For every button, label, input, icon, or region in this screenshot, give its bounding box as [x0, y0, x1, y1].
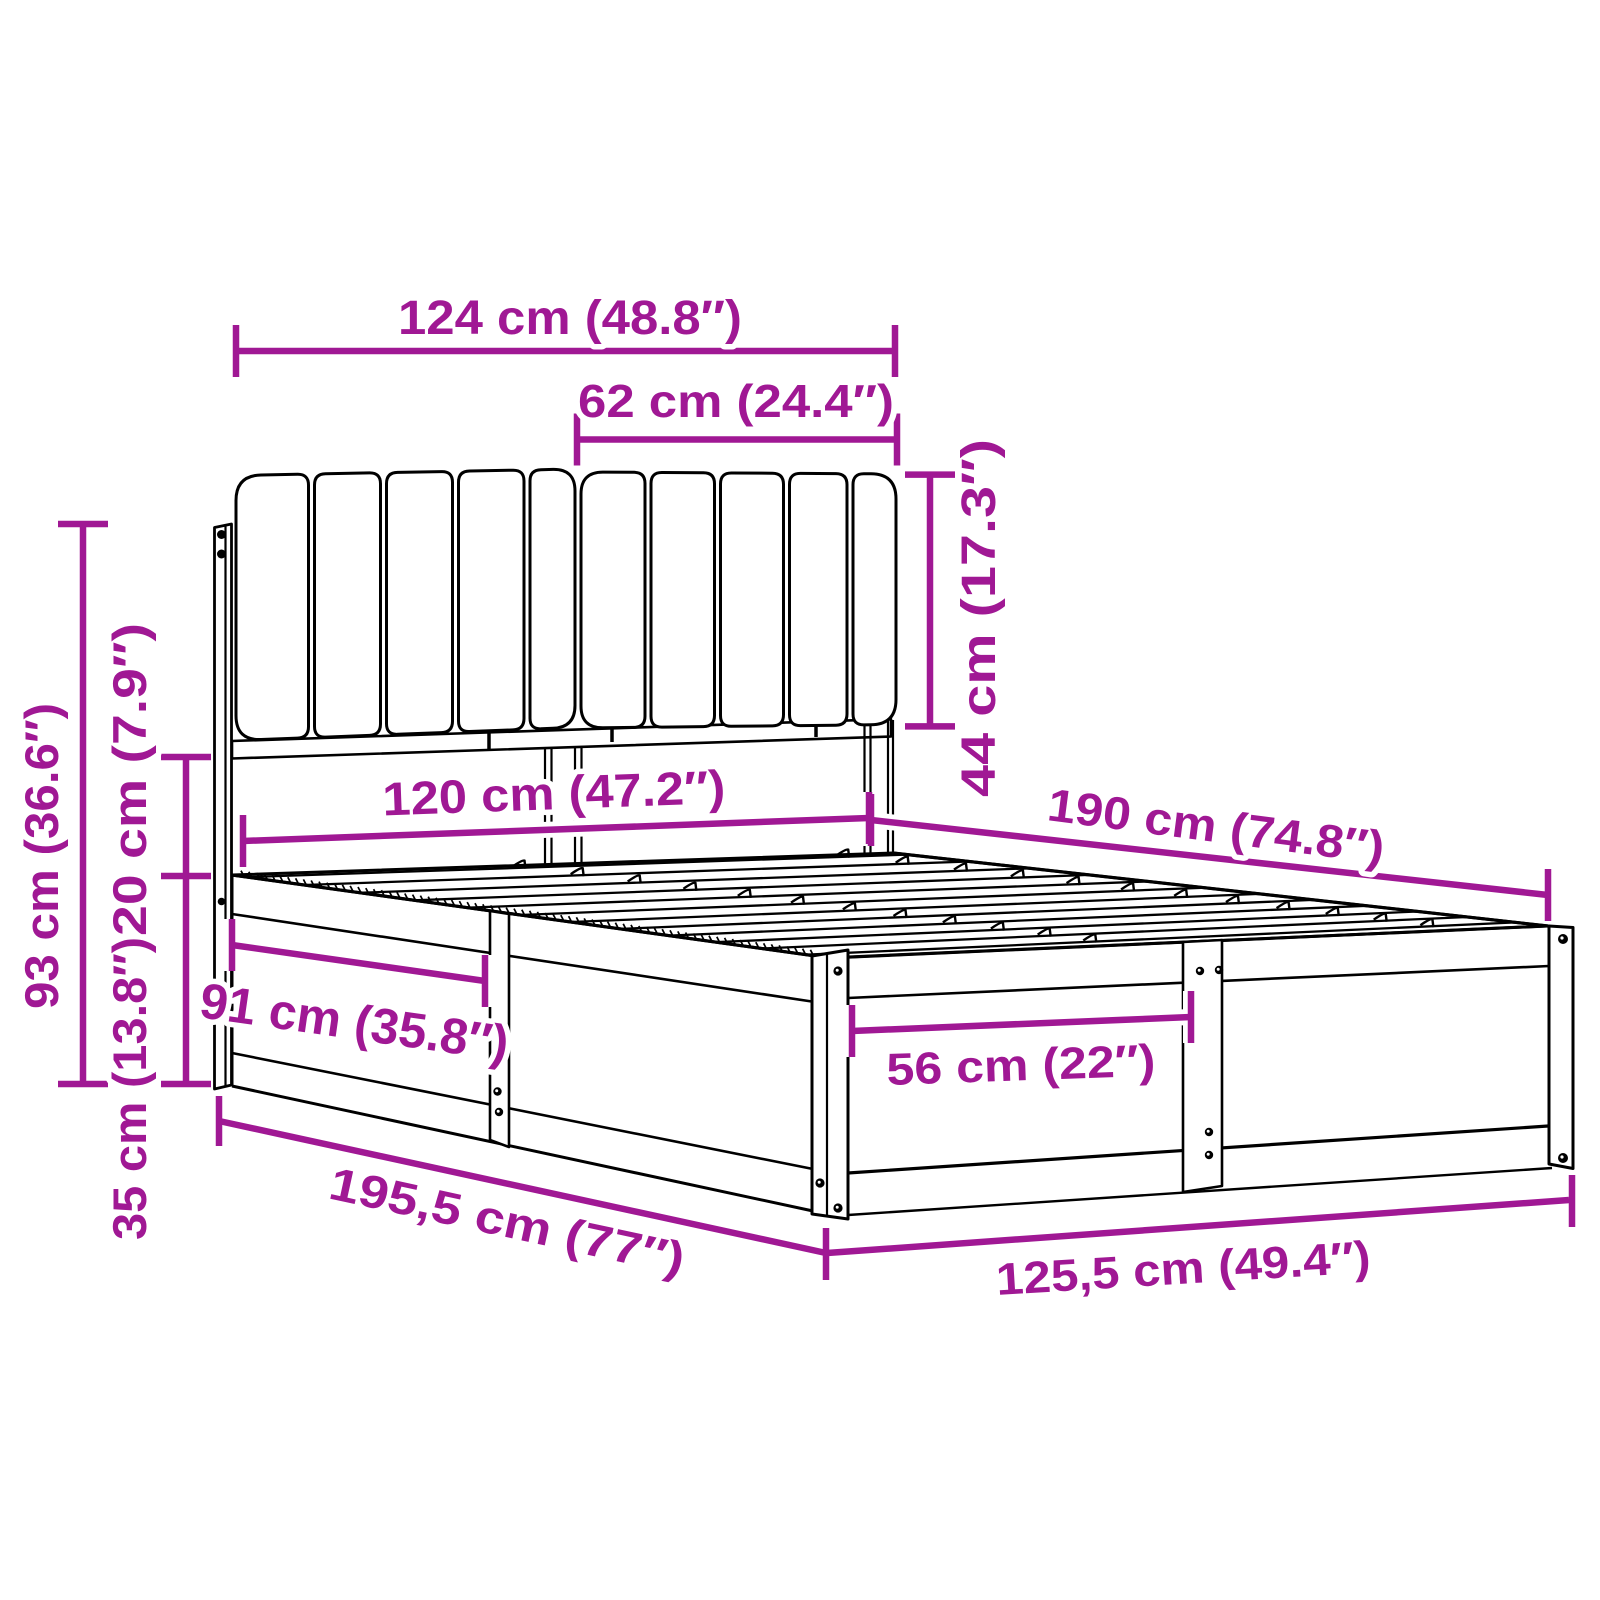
svg-text:93 cm (36.6″): 93 cm (36.6″)	[15, 703, 68, 1009]
svg-text:44 cm (17.3″): 44 cm (17.3″)	[953, 439, 1006, 797]
svg-text:62 cm (24.4″): 62 cm (24.4″)	[578, 375, 894, 427]
svg-text:56 cm (22″): 56 cm (22″)	[886, 1035, 1157, 1095]
svg-text:35 cm (13.8″): 35 cm (13.8″)	[103, 937, 156, 1240]
svg-text:124 cm (48.8″): 124 cm (48.8″)	[398, 292, 742, 345]
svg-text:20 cm (7.9″): 20 cm (7.9″)	[103, 623, 156, 936]
